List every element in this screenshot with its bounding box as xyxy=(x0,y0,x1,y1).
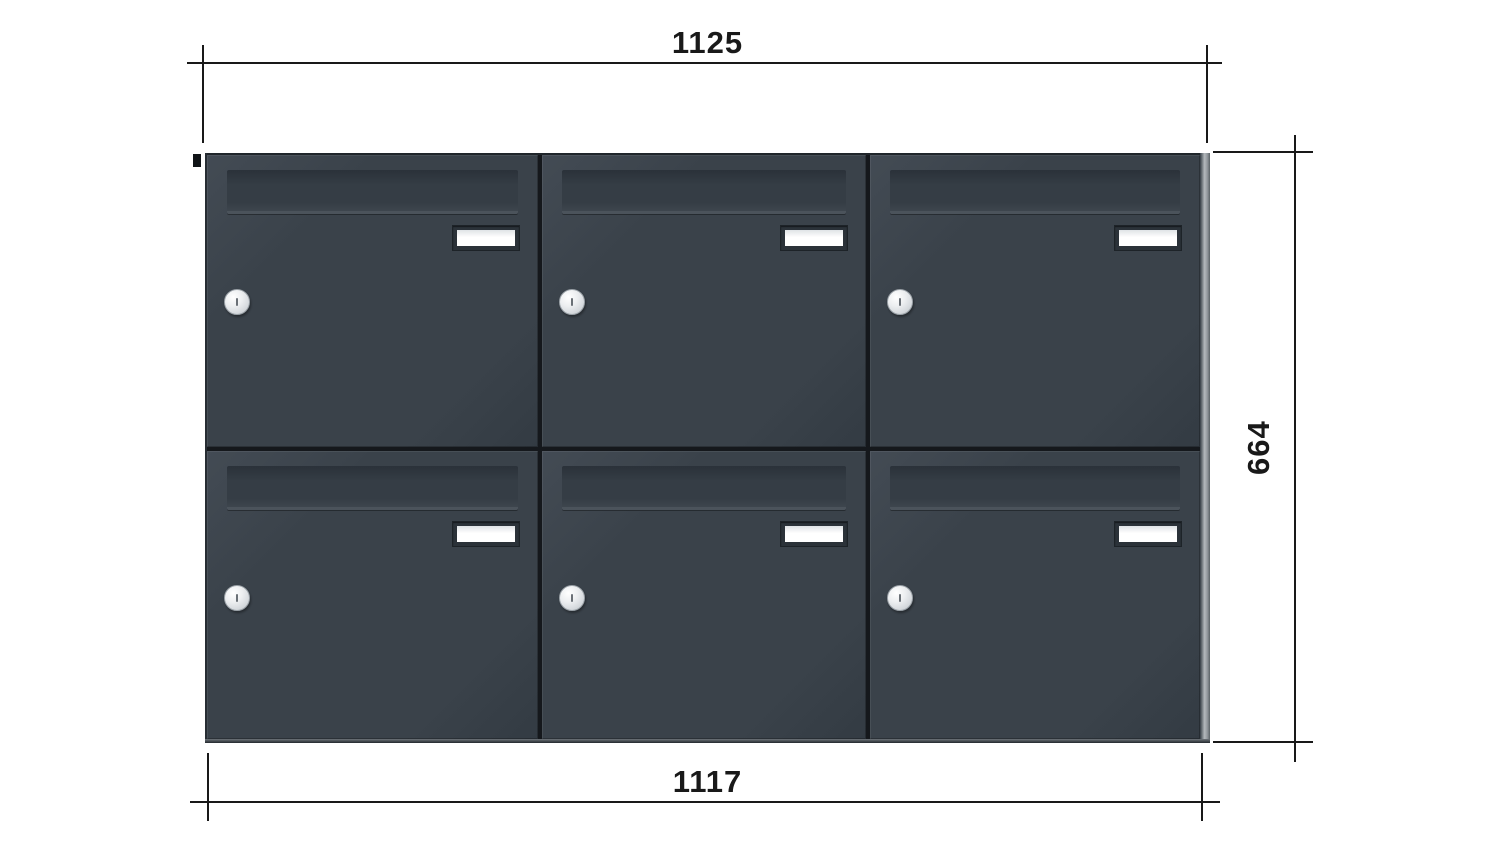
name-plate xyxy=(457,230,515,246)
lock-cylinder-icon xyxy=(887,585,913,611)
name-plate xyxy=(1119,230,1177,246)
lock-cylinder-icon xyxy=(559,585,585,611)
mail-slot-flap xyxy=(890,466,1180,510)
name-plate-frame xyxy=(780,225,848,251)
keyhole-icon xyxy=(571,594,573,602)
mailbox-door-r1c3 xyxy=(870,155,1200,447)
mail-slot-flap xyxy=(562,170,846,214)
cabinet-left-edge xyxy=(205,153,207,743)
name-plate-frame xyxy=(452,521,520,547)
mail-slot-flap xyxy=(562,466,846,510)
extension-tick-bottom-left xyxy=(207,753,209,821)
name-plate xyxy=(785,230,843,246)
mailbox-door-r1c1 xyxy=(207,155,538,447)
keyhole-icon xyxy=(571,298,573,306)
name-plate-frame xyxy=(1114,521,1182,547)
dimension-line-right xyxy=(1294,135,1296,762)
cabinet-top-edge xyxy=(205,153,1210,155)
mailbox-door-r2c2 xyxy=(542,451,866,739)
lock-cylinder-icon xyxy=(224,289,250,315)
keyhole-icon xyxy=(899,298,901,306)
extension-tick-top-left xyxy=(202,45,204,143)
name-plate-frame xyxy=(452,225,520,251)
technical-drawing-canvas: 1125 664 1117 xyxy=(0,0,1500,856)
cabinet-right-side-panel xyxy=(1200,153,1210,743)
name-plate xyxy=(1119,526,1177,542)
extension-tick-right-bottom xyxy=(1213,741,1313,743)
name-plate-frame xyxy=(780,521,848,547)
name-plate xyxy=(457,526,515,542)
mailbox-door-r2c1 xyxy=(207,451,538,739)
dimension-label-right-height: 664 xyxy=(1243,153,1274,743)
extension-tick-top-right xyxy=(1206,45,1208,143)
lock-cylinder-icon xyxy=(559,289,585,315)
mail-slot-flap xyxy=(227,170,518,214)
dimension-label-bottom-width: 1117 xyxy=(205,766,1210,797)
mailbox-door-r1c2 xyxy=(542,155,866,447)
dimension-line-bottom xyxy=(190,801,1220,803)
keyhole-icon xyxy=(899,594,901,602)
dimension-line-top xyxy=(187,62,1222,64)
mailbox-door-r2c3 xyxy=(870,451,1200,739)
lock-cylinder-icon xyxy=(224,585,250,611)
keyhole-icon xyxy=(236,594,238,602)
lock-cylinder-icon xyxy=(887,289,913,315)
mail-slot-flap xyxy=(890,170,1180,214)
mounting-tab-left xyxy=(193,154,201,167)
name-plate-frame xyxy=(1114,225,1182,251)
letterbox-unit xyxy=(205,153,1210,743)
extension-tick-right-top xyxy=(1213,151,1313,153)
extension-tick-bottom-right xyxy=(1201,753,1203,821)
keyhole-icon xyxy=(236,298,238,306)
mail-slot-flap xyxy=(227,466,518,510)
cabinet-bottom-edge xyxy=(205,739,1210,743)
name-plate xyxy=(785,526,843,542)
dimension-label-top-width: 1125 xyxy=(205,27,1210,58)
